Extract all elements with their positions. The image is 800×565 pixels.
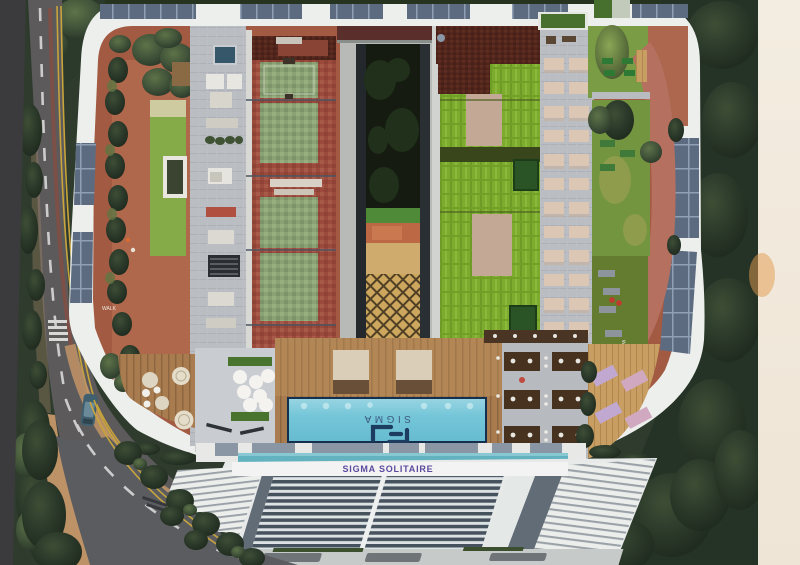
svg-text:SIGMA SOLITAIRE: SIGMA SOLITAIRE xyxy=(342,464,433,474)
svg-text:WALK: WALK xyxy=(102,306,117,312)
svg-text:SIGMA: SIGMA xyxy=(361,413,411,424)
